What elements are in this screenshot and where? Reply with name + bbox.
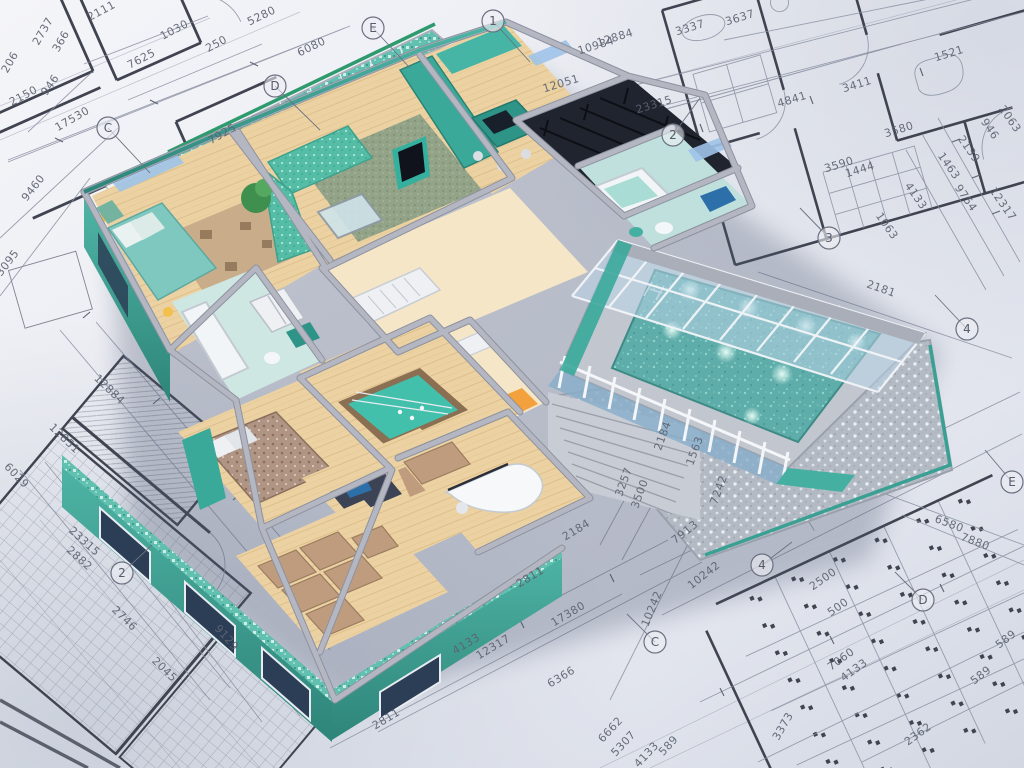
dimension-label: 1463: [935, 150, 963, 182]
dimension-label: 7913: [669, 518, 701, 547]
dimension-label: 1063: [873, 210, 901, 242]
dimension-label: 7925: [206, 121, 238, 147]
dimension-label: 23315: [634, 93, 674, 116]
dimension-label: 7880: [959, 530, 992, 553]
dimension-label: 2111: [85, 0, 118, 24]
dimension-label: 17380: [549, 599, 588, 629]
grid-marker-label: D: [270, 79, 279, 93]
grid-marker: E: [362, 17, 410, 68]
dimension-label: 4841: [776, 89, 808, 110]
dimension-label: 250: [203, 33, 229, 55]
grid-marker: 3: [800, 208, 840, 249]
dimension-label: 2500: [807, 565, 839, 593]
grid-marker-label: 2: [118, 566, 126, 580]
dimension-label: 1030: [158, 17, 191, 43]
grid-marker-label: 4: [963, 322, 971, 336]
grid-marker-label: E: [369, 21, 377, 35]
dimension-label: 6029: [1, 460, 31, 491]
dimension-label: 10242: [685, 559, 723, 592]
dimension-label: 12317: [987, 185, 1019, 223]
grid-marker-label: 2: [669, 128, 677, 142]
grid-marker: D: [895, 572, 934, 611]
dimension-label: 3257: [612, 465, 634, 498]
dimension-label: 2811: [514, 564, 546, 591]
dimension-label: 3411: [841, 74, 873, 95]
dimension-label: 2184: [560, 517, 592, 544]
dimension-label: 589: [968, 663, 994, 687]
grid-marker: 2: [111, 545, 152, 584]
dimension-label: 589: [993, 627, 1019, 651]
dimension-label: 2811: [370, 706, 402, 733]
dimension-label: 2045: [149, 654, 180, 684]
dimension-label: 946: [38, 72, 62, 98]
dimension-label: 17530: [53, 104, 92, 134]
dimension-label: 2746: [109, 603, 140, 633]
grid-marker: 4: [751, 542, 792, 576]
grid-marker-label: D: [918, 593, 927, 607]
dimension-label: 3373: [770, 710, 796, 742]
dimension-label: 2184: [651, 419, 673, 452]
dimension-label: 12051: [541, 72, 581, 95]
dimension-label: 2150: [7, 83, 40, 109]
dimension-label: 12884: [91, 372, 127, 407]
dimension-label: 12317: [474, 632, 513, 662]
dimension-label: 6580: [933, 512, 966, 535]
dimension-label: 3637: [724, 7, 756, 28]
dimension-label: 206: [0, 49, 21, 75]
dimension-label: 2181: [865, 278, 898, 300]
dimension-label: 9129: [212, 622, 242, 653]
grid-marker: C: [97, 117, 150, 173]
grid-marker-label: C: [651, 635, 659, 649]
dimension-label: 3337: [674, 17, 706, 38]
dimension-label: 946: [978, 116, 1002, 142]
dimension-label: 366: [50, 28, 73, 54]
dimension-label: 2139: [955, 133, 983, 165]
grid-marker: 4: [935, 295, 978, 340]
dimension-label: 9754: [952, 182, 980, 214]
grid-marker: D: [264, 75, 320, 130]
dimension-label: 1563: [683, 434, 705, 467]
grid-marker-label: 4: [758, 558, 766, 572]
dimension-label: 6366: [545, 664, 577, 691]
dimension-label: 4133: [631, 739, 661, 768]
dimension-label: 3580: [883, 119, 915, 140]
dimension-label: 3500: [628, 477, 650, 510]
grid-marker-label: C: [104, 121, 112, 135]
dimension-label: 7242: [707, 473, 729, 506]
grid-marker-label: E: [1008, 475, 1016, 489]
dimension-label: 9460: [19, 172, 48, 204]
screenshot-root: 2111273736620694621507625175309460792510…: [0, 0, 1024, 768]
dimension-label: 6080: [295, 34, 328, 59]
dimension-label: 500: [825, 595, 851, 619]
dimension-label: 589: [656, 733, 681, 758]
dimension-label: 10242: [639, 589, 665, 629]
grid-marker-label: 3: [825, 231, 833, 245]
dimension-label: 12851: [46, 421, 82, 456]
grid-marker-label: 1: [489, 14, 497, 28]
annotations-layer: 2111273736620694621507625175309460792510…: [0, 0, 1024, 768]
dimension-label: 5280: [245, 3, 278, 28]
dimension-label: 13095: [0, 247, 22, 285]
dimension-label: 1521: [933, 43, 965, 64]
grid-marker: E: [985, 450, 1023, 493]
dimension-label: 2063: [996, 103, 1024, 135]
grid-marker: 1: [482, 10, 530, 62]
dimension-label: 4133: [902, 180, 930, 212]
dimension-label: 7625: [125, 46, 158, 72]
dimension-label: 2362: [902, 720, 934, 748]
